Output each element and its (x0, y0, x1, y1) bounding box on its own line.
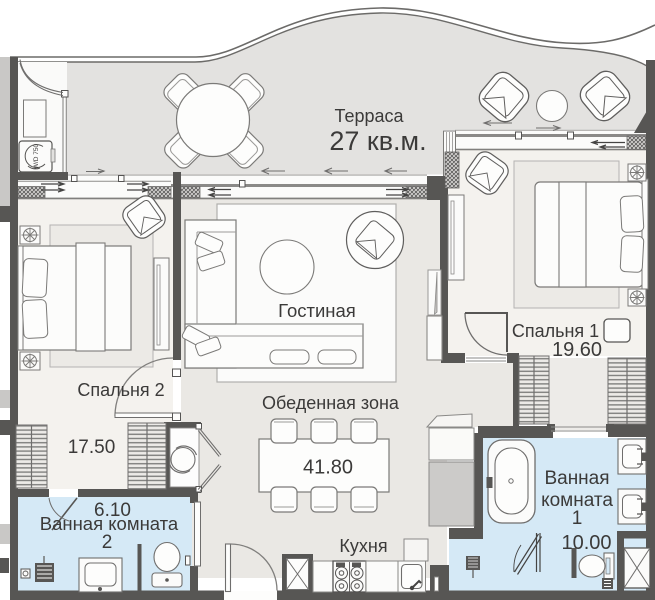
svg-text:Спальня 2: Спальня 2 (77, 380, 164, 400)
svg-text:2: 2 (102, 532, 113, 553)
svg-text:Терраса: Терраса (334, 106, 404, 126)
svg-text:17.50: 17.50 (68, 437, 116, 458)
svg-text:Ванная комната: Ванная комната (40, 513, 179, 534)
svg-text:W/D 750: W/D 750 (33, 143, 40, 169)
svg-text:Гостиная: Гостиная (278, 300, 356, 321)
svg-text:Кухня: Кухня (339, 536, 387, 556)
svg-text:41.80: 41.80 (303, 457, 353, 479)
svg-text:Спальня 1: Спальня 1 (512, 321, 599, 341)
svg-text:Обеденная зона: Обеденная зона (262, 393, 400, 413)
svg-text:27 кв.м.: 27 кв.м. (329, 126, 426, 156)
svg-text:1: 1 (572, 508, 583, 529)
svg-text:Ванная: Ванная (544, 468, 609, 489)
svg-text:19.60: 19.60 (552, 339, 602, 361)
svg-text:10.00: 10.00 (561, 532, 611, 554)
